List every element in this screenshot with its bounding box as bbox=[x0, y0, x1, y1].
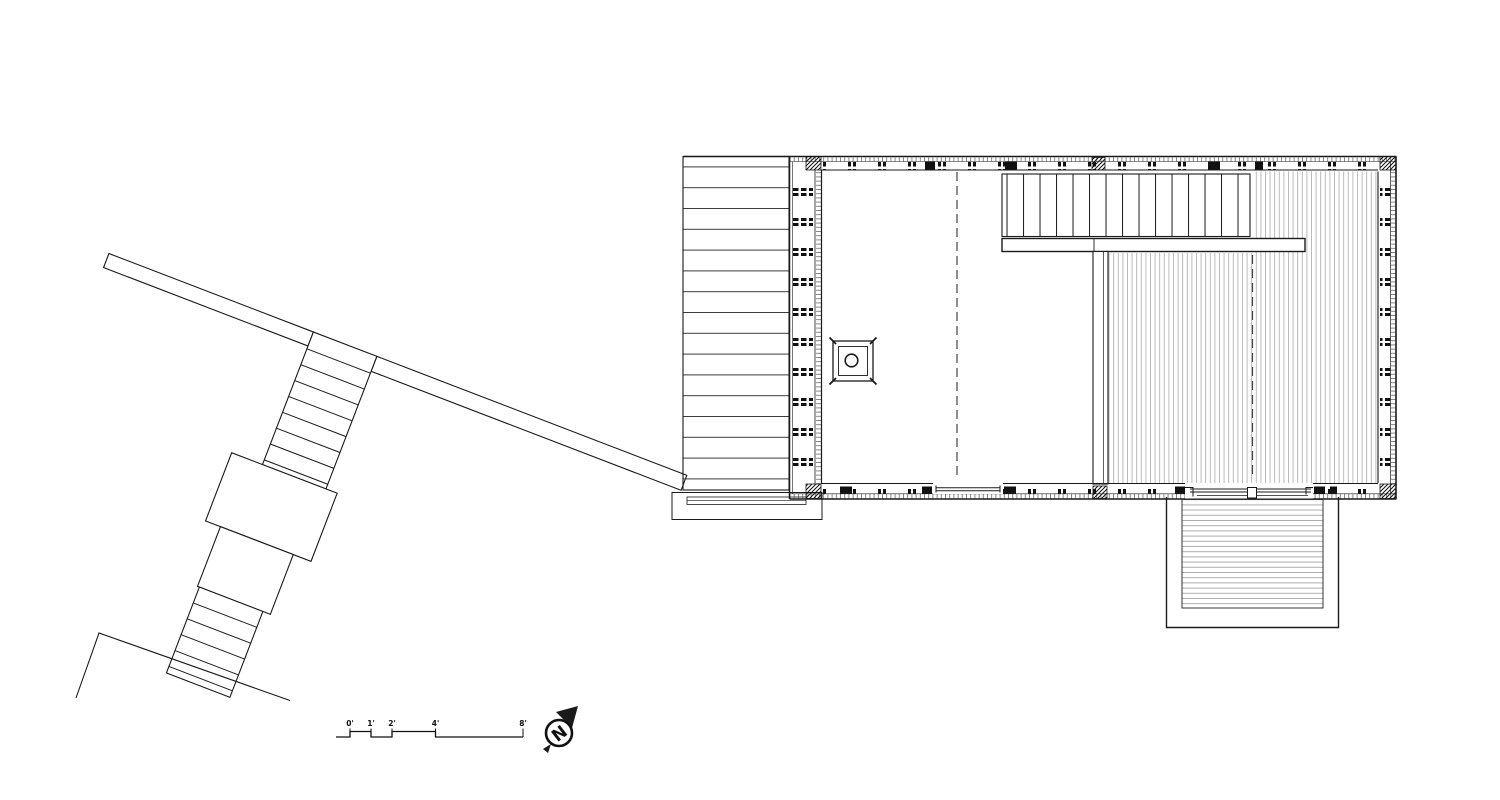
sliding-door bbox=[1185, 484, 1313, 499]
interior-partition bbox=[1093, 252, 1108, 485]
north-arrow-tail bbox=[543, 744, 551, 753]
west-wall bbox=[790, 157, 822, 500]
east-wall bbox=[1378, 157, 1396, 500]
interior bbox=[830, 172, 1379, 485]
north-arrow-icon: N bbox=[543, 706, 578, 753]
scale-label-0: 0' bbox=[346, 719, 354, 728]
door-pull bbox=[1248, 488, 1257, 499]
scale-bar: 0' 1' 2' 4' 8' bbox=[336, 719, 527, 737]
upper-exterior-stair bbox=[262, 332, 376, 489]
stove-flue-circle bbox=[845, 354, 858, 367]
south-window bbox=[933, 484, 1003, 494]
west-deck bbox=[683, 157, 789, 491]
floor-plan-canvas: 0' 1' 2' 4' 8' N bbox=[0, 0, 1500, 800]
lower-boardwalk-ramp bbox=[371, 356, 687, 490]
scale-label-1: 1' bbox=[367, 719, 375, 728]
scale-label-4: 4' bbox=[432, 719, 440, 728]
south-balcony bbox=[1167, 497, 1339, 628]
scale-label-2: 2' bbox=[388, 719, 396, 728]
floor-hatch-east bbox=[1253, 172, 1379, 484]
stair-guard-wall bbox=[1002, 239, 1305, 252]
floor-hatch-center bbox=[1108, 253, 1253, 483]
scale-label-8: 8' bbox=[519, 719, 527, 728]
upper-boardwalk-ramp bbox=[104, 254, 314, 346]
site-walkway-stairs bbox=[0, 254, 687, 800]
wood-stove bbox=[830, 338, 877, 385]
balcony-deck-panel bbox=[1182, 500, 1323, 609]
plan-sheet: 0' 1' 2' 4' 8' N bbox=[0, 0, 1500, 800]
